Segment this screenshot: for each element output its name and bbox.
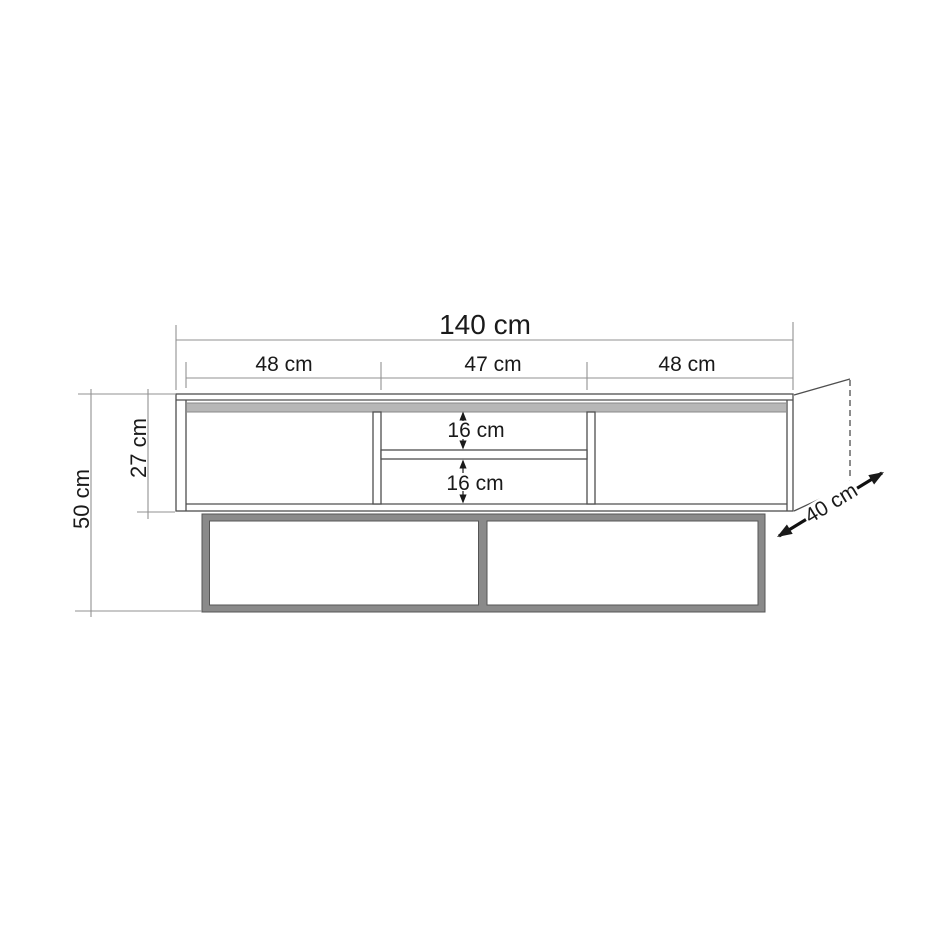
divider-right [587, 412, 595, 504]
label-upper-opening: 16 cm [447, 419, 504, 442]
diagram-page: 140 cm 48 cm 47 cm 48 cm 16 cm 16 cm 27 … [0, 0, 936, 935]
label-section-middle: 47 cm [464, 353, 521, 376]
label-section-right: 48 cm [658, 353, 715, 376]
depth-arrowhead-lower [777, 525, 793, 538]
label-overall-height: 50 cm [69, 469, 94, 529]
divider-left [373, 412, 381, 504]
middle-shelf [381, 450, 587, 459]
label-cabinet-height: 27 cm [126, 418, 151, 478]
base-frame-opening-left [210, 521, 479, 605]
metal-base-frame [202, 514, 765, 612]
base-frame-opening-right [487, 521, 758, 605]
depth-arrowhead-upper [868, 472, 884, 485]
tv-stand-dimension-diagram: 140 cm 48 cm 47 cm 48 cm 16 cm 16 cm 27 … [0, 0, 936, 935]
label-total-width: 140 cm [439, 309, 531, 340]
cabinet-top-strip [187, 403, 787, 412]
label-section-left: 48 cm [255, 353, 312, 376]
label-lower-opening: 16 cm [446, 472, 503, 495]
